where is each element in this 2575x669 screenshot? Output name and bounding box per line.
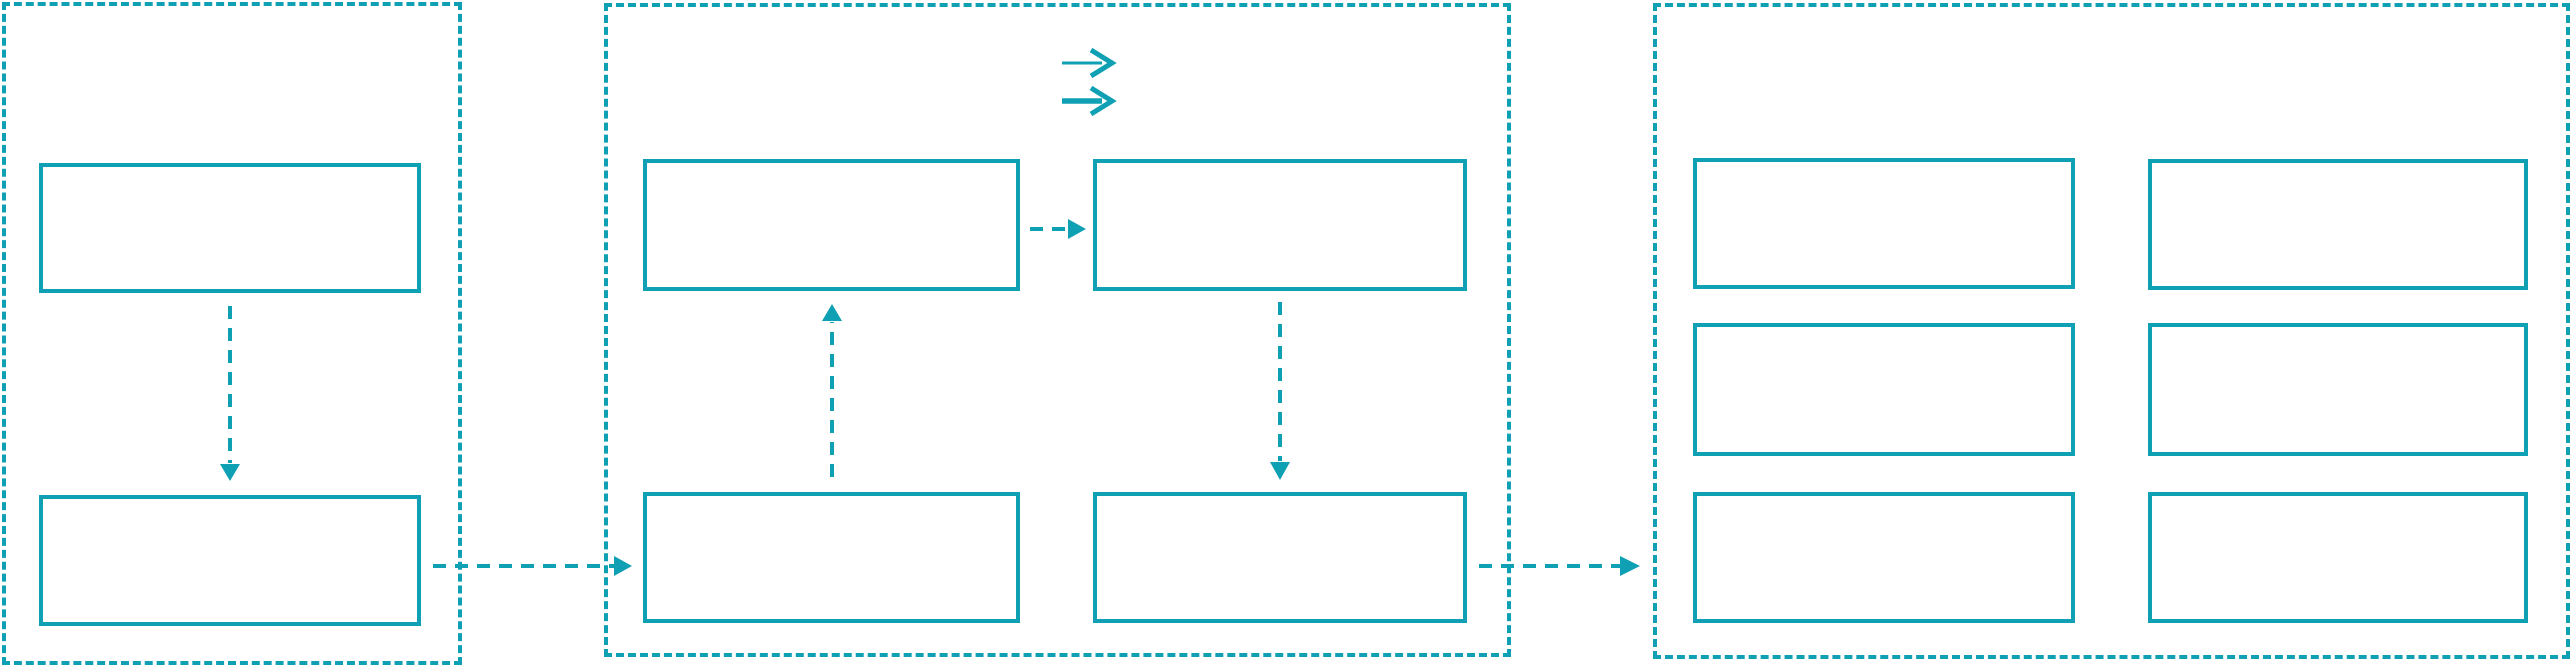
left-top-box [39,163,421,293]
middle-bottom-left-box [643,492,1020,623]
middle-top-left-box [643,159,1020,291]
middle-top-right-box [1093,159,1467,291]
right-box-row2-col2 [2148,323,2528,456]
right-box-row2-col1 [1693,323,2075,456]
right-box-row1-col1 [1693,158,2075,289]
right-box-row1-col2 [2148,159,2528,290]
right-box-row3-col2 [2148,492,2528,623]
arrow-left-to-middle [433,556,632,576]
left-bottom-box [39,495,421,626]
right-box-row3-col1 [1693,492,2075,623]
diagram-canvas [0,0,2575,669]
middle-bottom-right-box [1093,492,1467,623]
